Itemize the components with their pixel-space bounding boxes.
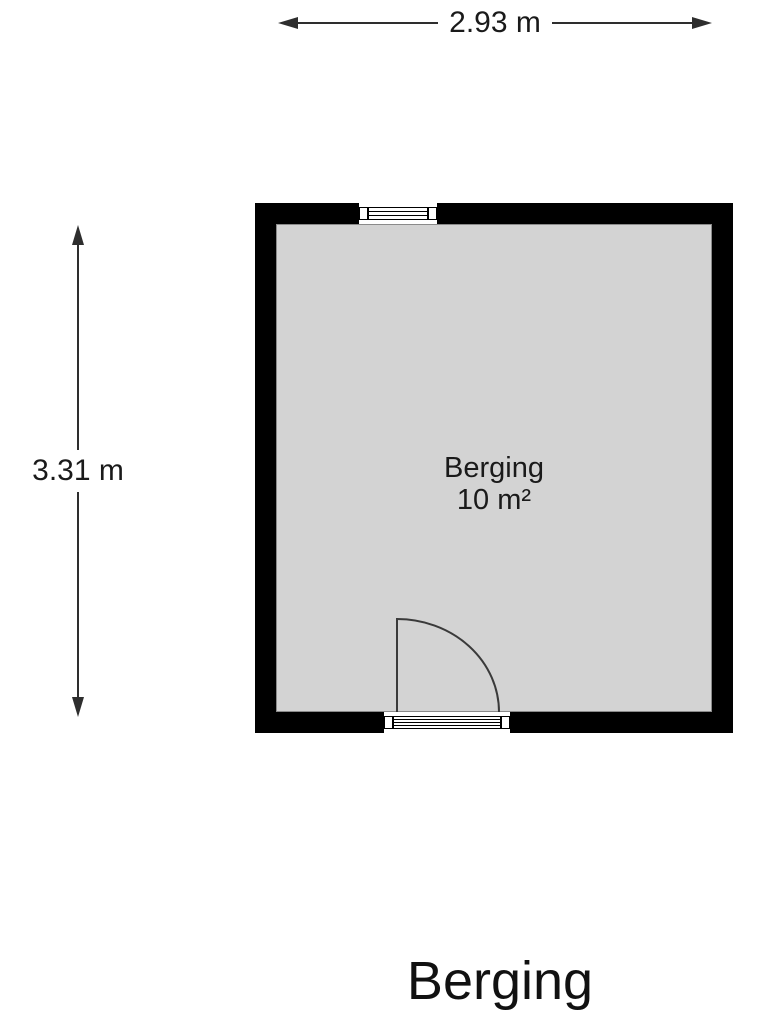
window-jamb-left [359, 207, 368, 220]
left-arrowhead-icon [278, 17, 298, 29]
door-jamb-right [501, 716, 510, 729]
down-arrowhead-icon [72, 697, 84, 717]
room-label-group: Berging 10 m² [255, 452, 733, 516]
room-area-label: 10 m² [255, 484, 733, 516]
height-dimension-label: 3.31 m [32, 456, 124, 486]
floorplan-title: Berging [255, 951, 745, 1011]
door-sill-icon [384, 712, 510, 733]
up-arrowhead-icon [72, 225, 84, 245]
right-arrowhead-icon [692, 17, 712, 29]
dimension-line-bottom [77, 492, 79, 697]
dimension-line-left [298, 22, 438, 24]
window-jamb-right [428, 207, 437, 220]
door-jamb-left [384, 716, 393, 729]
height-dimension: 3.31 m [55, 225, 101, 717]
floorplan-canvas: 2.93 m 3.31 m Berging 10 m² [0, 0, 768, 1024]
dimension-line-right [552, 22, 692, 24]
room-name-label: Berging [255, 452, 733, 484]
dimension-line-top [77, 245, 79, 450]
door-swing-icon [395, 618, 502, 713]
window-icon [359, 203, 437, 224]
width-dimension: 2.93 m [278, 1, 712, 45]
door-sill-panel [393, 716, 501, 729]
window-pane [368, 207, 428, 220]
width-dimension-label: 2.93 m [438, 8, 552, 38]
